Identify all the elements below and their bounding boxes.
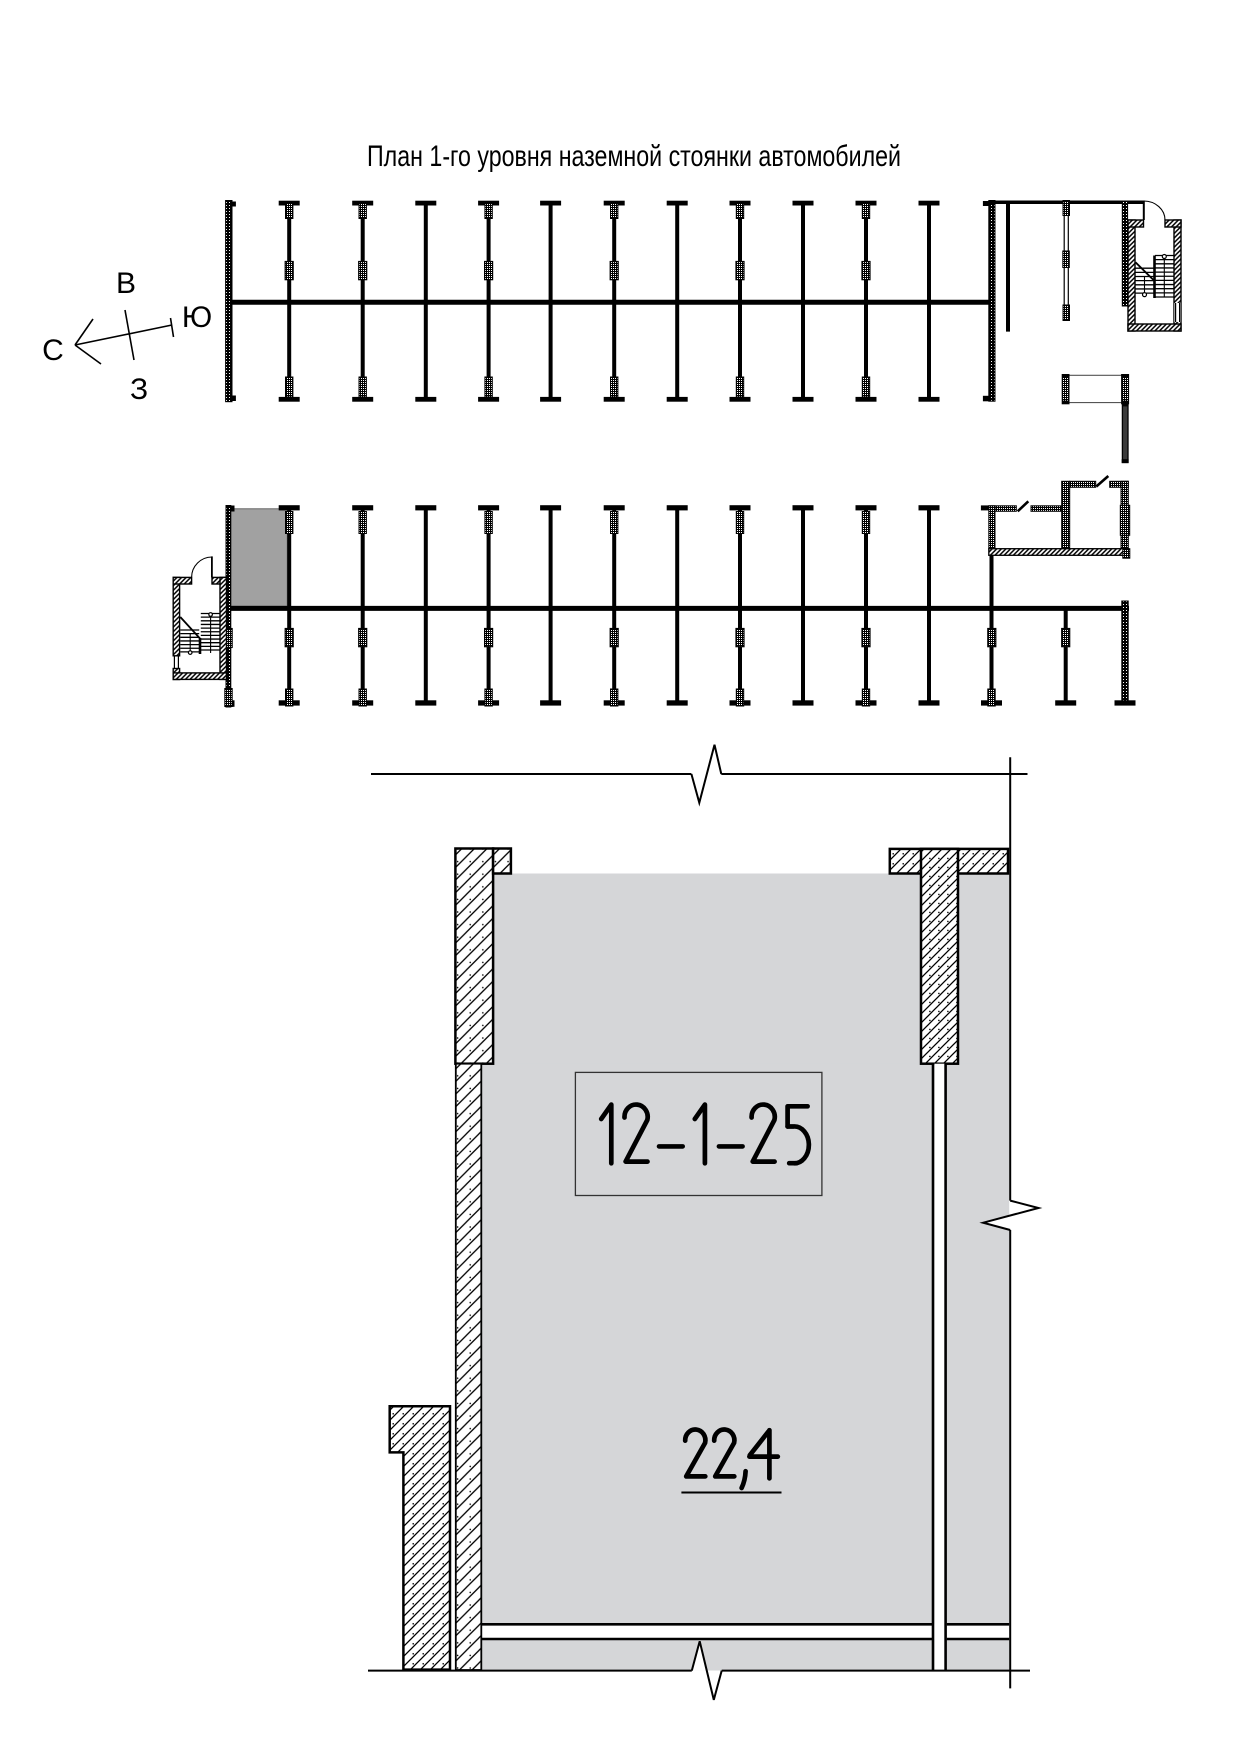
svg-text:В: В: [116, 267, 136, 300]
svg-text:С: С: [42, 334, 64, 367]
svg-text:План 1-го уровня наземной стоя: План 1-го уровня наземной стоянки автомо…: [367, 140, 901, 173]
svg-text:Ю: Ю: [182, 301, 212, 334]
svg-text:З: З: [130, 373, 148, 406]
